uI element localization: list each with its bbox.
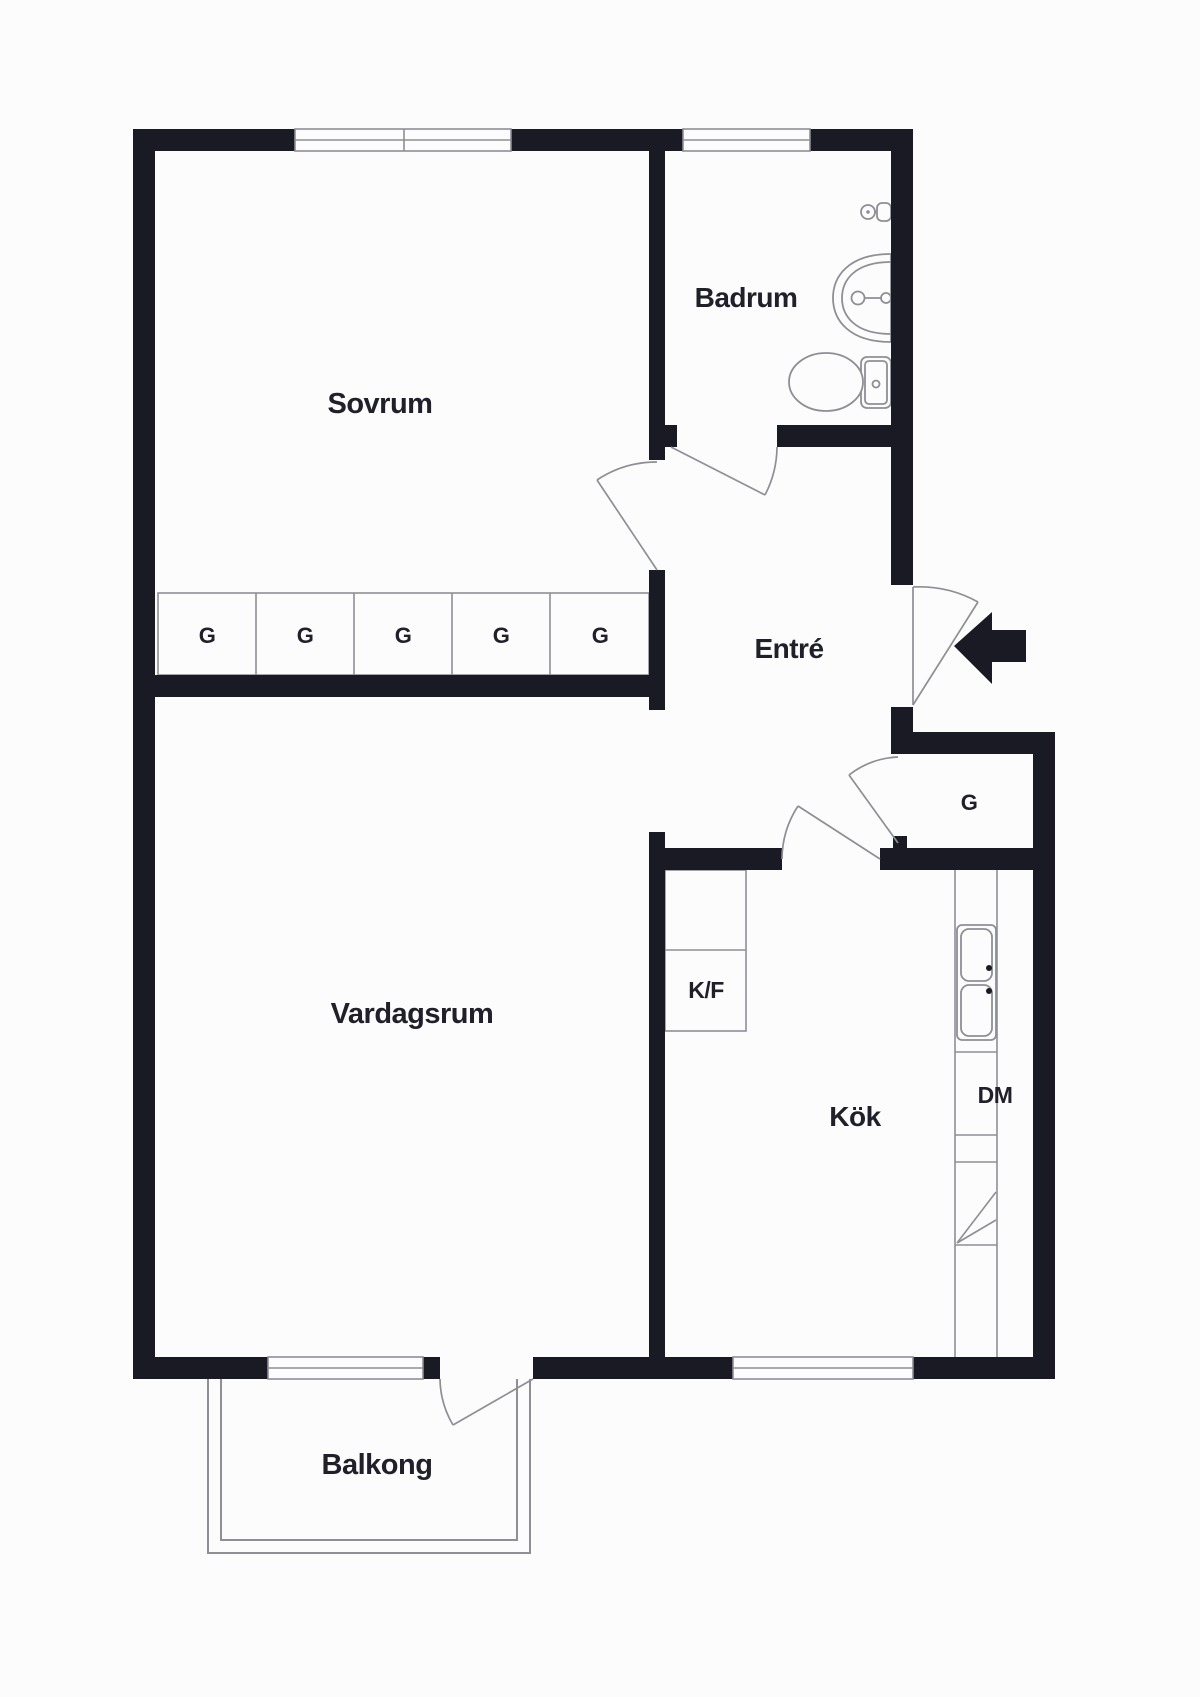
wall-segment [423,1357,440,1379]
wall-segment [133,675,649,697]
toilet-tank-inner [865,361,887,404]
room-label-bathroom: Badrum [695,282,798,313]
bathroom-window [683,129,810,151]
wall-segment [880,848,1033,870]
wardrobe-label: G [199,623,216,648]
wardrobe-label: G [297,623,314,648]
fridge-freezer-label: K/F [688,977,724,1003]
wall-segment [511,129,683,151]
basin-faucet-base [881,293,891,303]
wall-segment [913,1357,1055,1379]
tap-handle [877,203,891,221]
floor-plan-svg: Sovrum Badrum Entré Vardagsrum Kök Balko… [0,0,1200,1697]
bedroom-window [295,129,511,151]
kitchen-window [733,1357,913,1379]
wall-segment [133,1357,268,1379]
sink-faucet-dot [986,988,992,994]
fridge-freezer-unit [665,870,746,1031]
living-room-window [268,1357,423,1379]
floor-plan-image: Sovrum Badrum Entré Vardagsrum Kök Balko… [0,0,1200,1697]
room-label-entry: Entré [754,633,823,664]
sink-faucet-dot [986,965,992,971]
tap-knob-dot [866,210,870,214]
wardrobe-label: G [592,623,609,648]
wall-segment [891,447,913,585]
room-label-bedroom: Sovrum [328,388,433,420]
wall-segment [810,129,913,151]
sink-basin [961,929,992,981]
room-label-living-room: Vardagsrum [331,998,494,1030]
wall-segment [665,425,677,447]
toilet-icon [789,353,891,411]
wall-segment [891,151,913,425]
room-label-balcony: Balkong [322,1449,433,1481]
wardrobe-label: G [493,623,510,648]
wall-segment [133,129,295,151]
kitchen-sink [957,925,996,1040]
wall-segment [891,732,1055,754]
wall-segment [665,848,782,870]
room-label-kitchen: Kök [829,1101,881,1132]
wall-segment [1033,754,1055,1379]
wall-segment [533,1357,733,1379]
wall-segment [649,832,665,1357]
dishwasher-label: DM [978,1082,1013,1108]
hall-wardrobe-label: G [961,790,978,815]
wall-segment [891,707,913,732]
basin-faucet-knob [852,292,865,305]
wall-segment [649,570,665,710]
toilet-bowl [789,353,863,411]
wall-segment [777,425,913,447]
wardrobe-label: G [395,623,412,648]
wall-segment [133,129,155,1379]
wall-segment [649,151,665,460]
